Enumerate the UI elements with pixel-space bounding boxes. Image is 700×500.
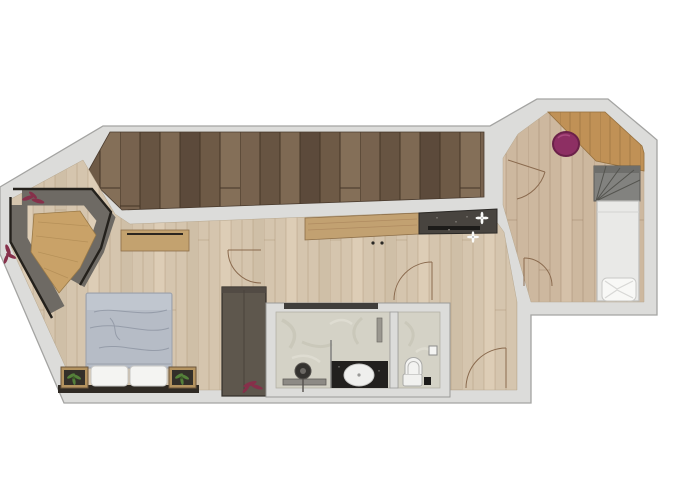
mirror-center: [300, 368, 306, 374]
wc-door-handle: [429, 346, 437, 355]
staircase-winder: [594, 166, 640, 201]
nightstand-left: [61, 367, 88, 388]
bath-wc-divider-wall: [390, 312, 398, 388]
nightstand-right: [169, 367, 196, 388]
waste-bin: [424, 377, 431, 385]
vanity-bench: [283, 379, 326, 385]
single-bed-pillow: [602, 278, 636, 301]
knob-1: [371, 241, 374, 244]
bed-pillow-right: [130, 366, 167, 386]
single-bed: [597, 201, 639, 301]
counter-groove: [428, 226, 480, 230]
toilet: [403, 358, 422, 387]
bed-pillow-left: [91, 366, 128, 386]
floor-plan-svg: [0, 0, 700, 500]
wardrobe: [222, 287, 266, 396]
basin-drain: [357, 373, 360, 376]
bathroom-block: [266, 303, 450, 397]
terrace-deck: [86, 132, 484, 210]
towel-rail: [377, 318, 382, 342]
kitchen-counter-dark: [419, 209, 497, 234]
duvet-highlight: [87, 294, 171, 310]
glass-partition-stripe: [284, 303, 378, 309]
floor-plan-stage: [0, 0, 700, 500]
knob-2: [380, 241, 383, 244]
